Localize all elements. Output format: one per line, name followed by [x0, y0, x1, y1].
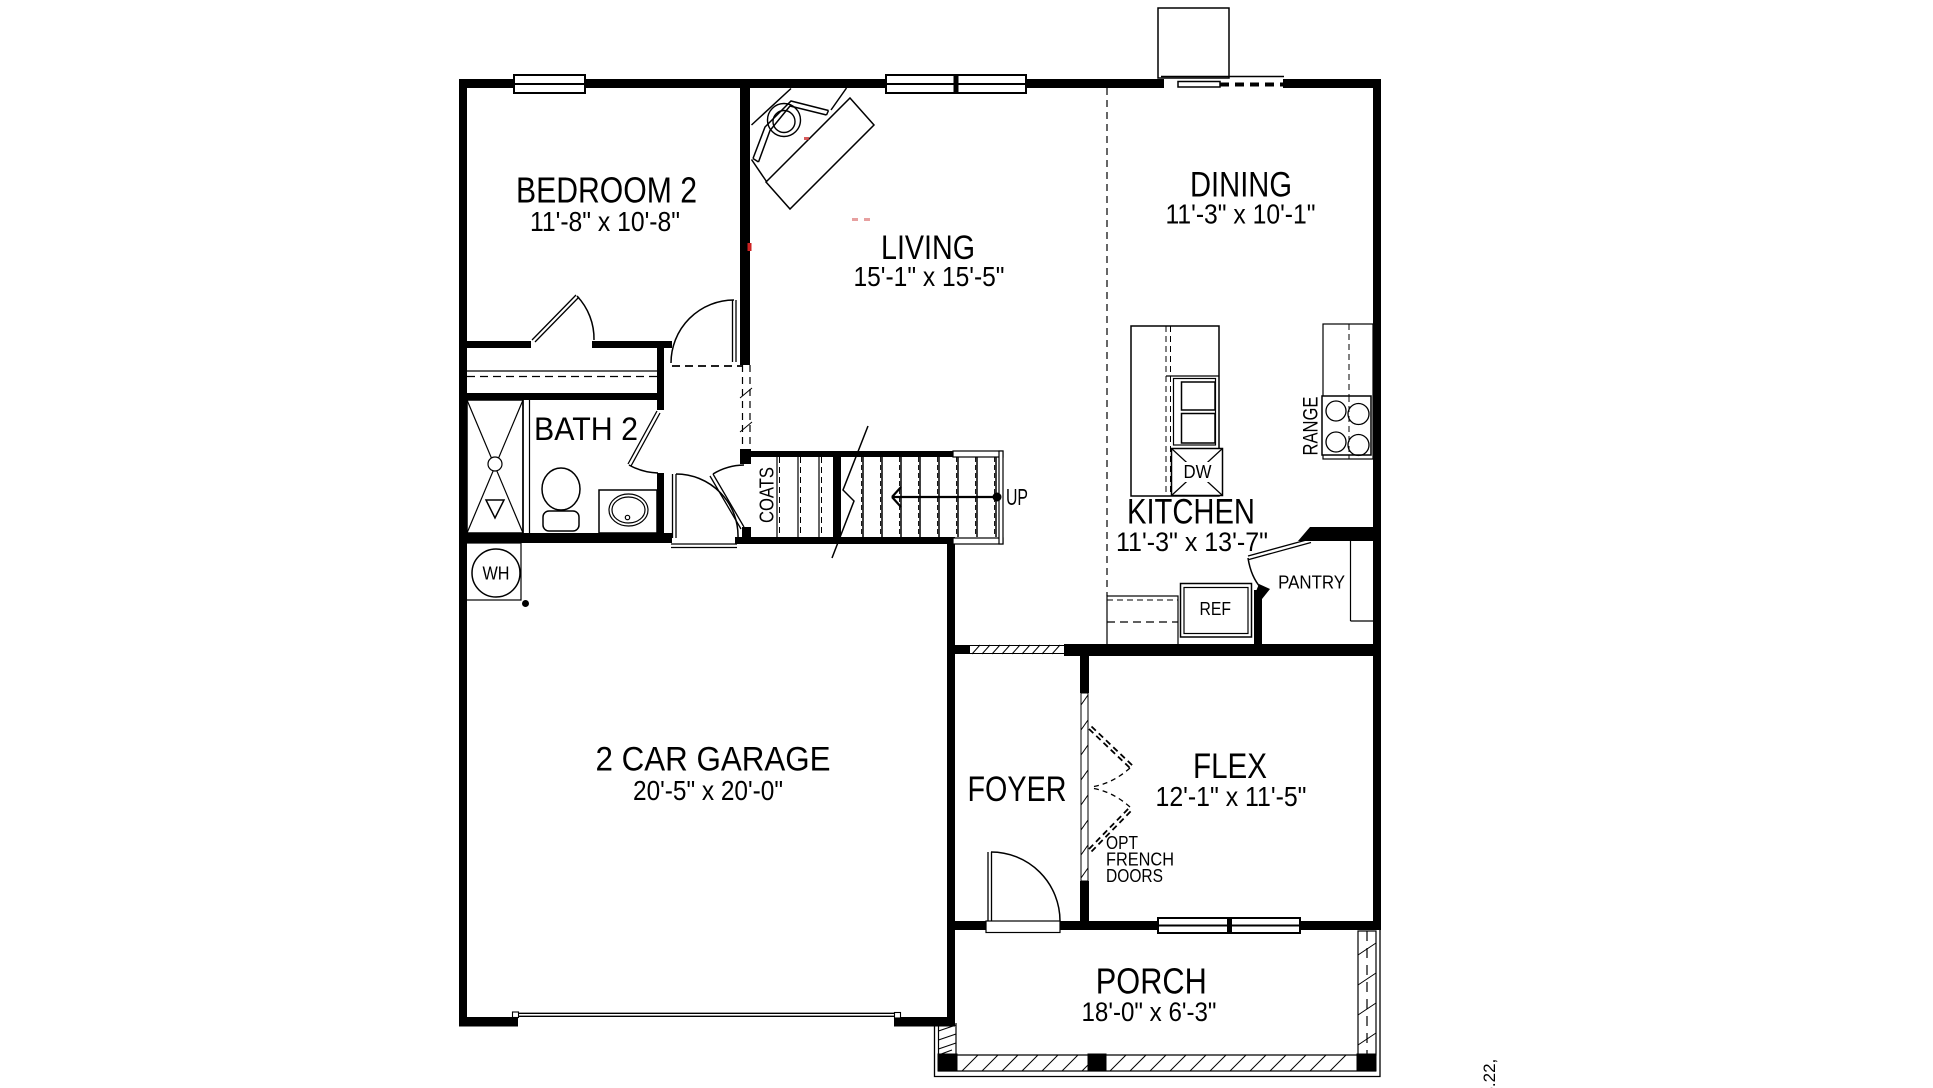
svg-text:FOYER: FOYER [968, 770, 1067, 809]
svg-text:COATS: COATS [756, 467, 779, 523]
svg-text:12'-1" x 11'-5": 12'-1" x 11'-5" [1156, 781, 1307, 812]
svg-text:REF: REF [1199, 599, 1231, 619]
svg-text:KITCHEN: KITCHEN [1127, 493, 1255, 532]
svg-text:03.22,: 03.22, [1480, 1059, 1499, 1088]
svg-text:18'-0" x 6'-3": 18'-0" x 6'-3" [1082, 997, 1217, 1027]
svg-text:11'-8" x 10'-8": 11'-8" x 10'-8" [530, 206, 680, 237]
svg-text:BEDROOM 2: BEDROOM 2 [516, 170, 697, 211]
svg-text:RANGE: RANGE [1300, 397, 1323, 456]
svg-text:2 CAR GARAGE: 2 CAR GARAGE [596, 741, 831, 779]
svg-text:15'-1" x 15'-5": 15'-1" x 15'-5" [854, 261, 1005, 292]
svg-text:UP: UP [1006, 484, 1028, 510]
svg-text:PORCH: PORCH [1096, 961, 1207, 1002]
svg-text:WH: WH [483, 564, 510, 584]
svg-text:BATH 2: BATH 2 [534, 411, 638, 447]
svg-text:11'-3" x 13'-7": 11'-3" x 13'-7" [1116, 527, 1268, 557]
svg-text:DOORS: DOORS [1106, 866, 1163, 886]
svg-text:20'-5" x 20'-0": 20'-5" x 20'-0" [633, 775, 783, 806]
svg-text:PANTRY: PANTRY [1278, 572, 1345, 593]
svg-text:11'-3" x 10'-1": 11'-3" x 10'-1" [1166, 199, 1316, 230]
svg-text:DW: DW [1184, 462, 1212, 482]
